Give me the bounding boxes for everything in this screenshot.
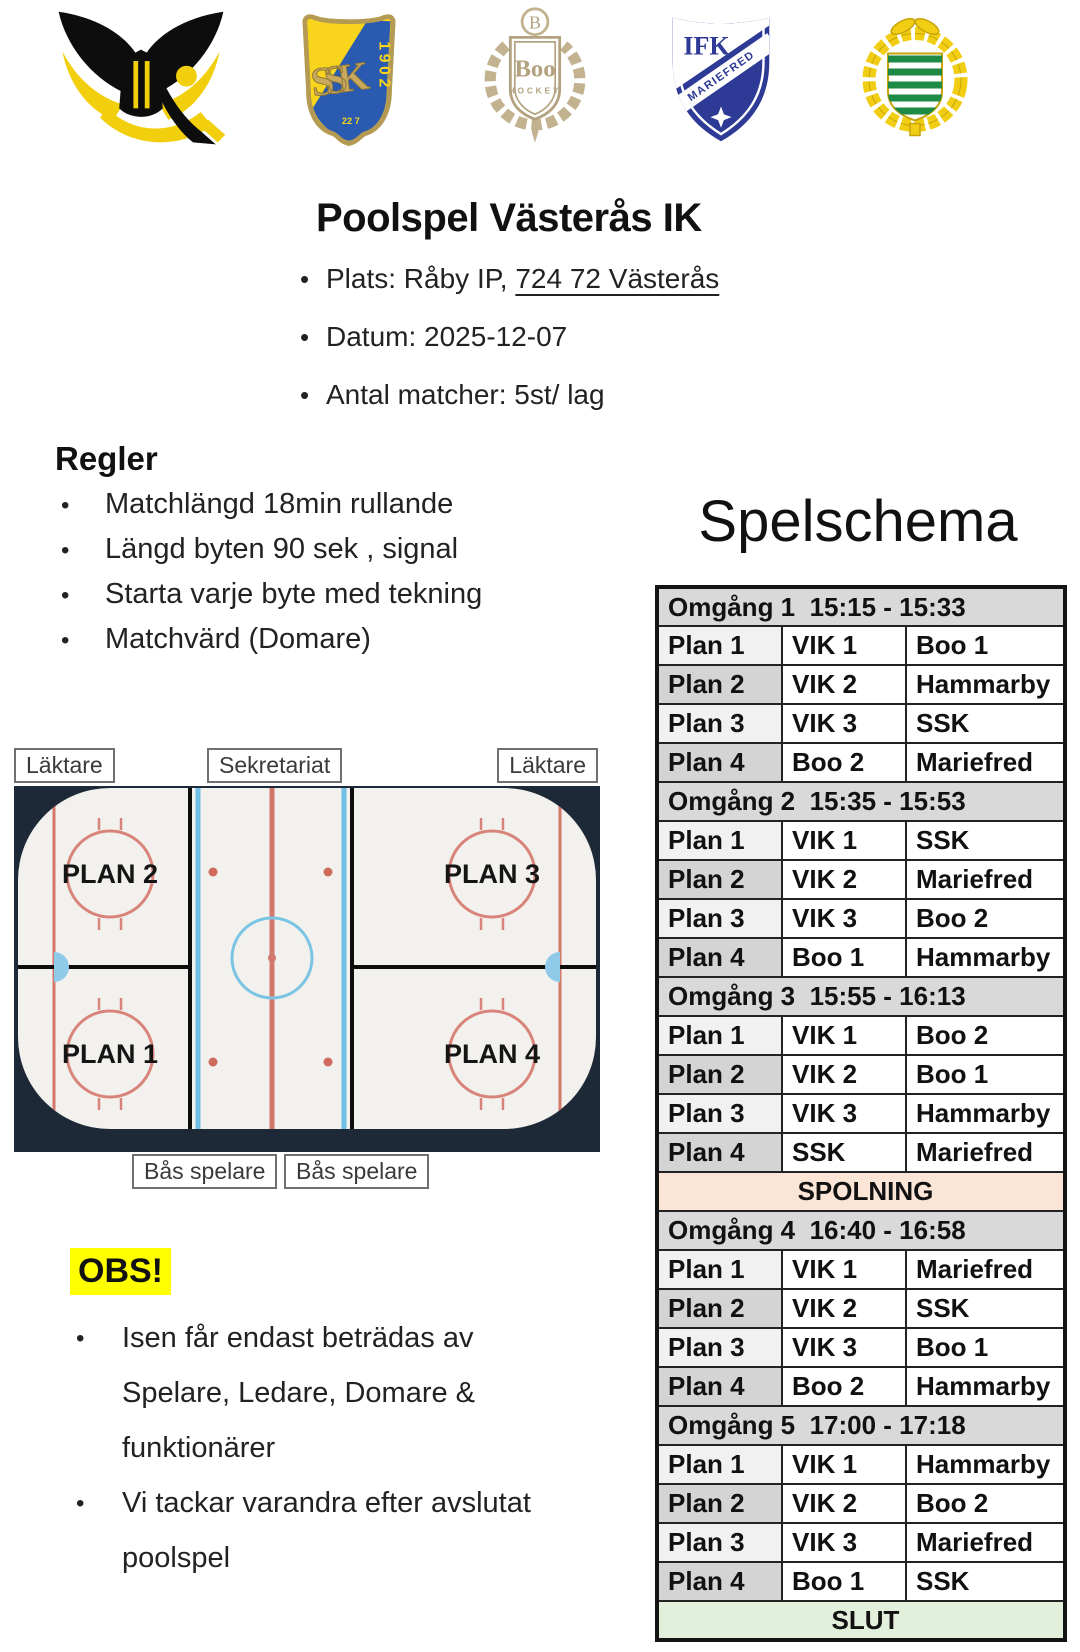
boo-hockey-logo: B Boo HOCKEY: [468, 6, 602, 154]
bullet-dot: •: [55, 627, 105, 655]
away-team-cell: Boo 2: [906, 1484, 1065, 1523]
schedule-match-row: Plan 2VIK 2Boo 2: [657, 1484, 1065, 1523]
schedule-match-row: Plan 4Boo 1SSK: [657, 1562, 1065, 1601]
schedule-banner-row: SPOLNING: [657, 1172, 1065, 1211]
schedule-round-header-row: Omgång 4 16:40 - 16:58: [657, 1211, 1065, 1250]
ifk-logo-art: IFK MARIEFRED: [663, 10, 779, 150]
away-team-cell: Boo 1: [906, 626, 1065, 665]
schedule-round-header-row: Omgång 1 15:15 - 15:33: [657, 587, 1065, 626]
obs-line: poolspel: [122, 1531, 531, 1586]
schedule-match-row: Plan 3VIK 3Mariefred: [657, 1523, 1065, 1562]
plan-cell: Plan 1: [657, 626, 782, 665]
home-team-cell: VIK 3: [782, 899, 906, 938]
obs-line: Spelare, Ledare, Domare &: [122, 1366, 475, 1421]
page-title: Poolspel Västerås IK: [316, 196, 860, 241]
away-team-cell: SSK: [906, 821, 1065, 860]
players-bench-label-2: Bås spelare: [284, 1154, 429, 1189]
home-team-cell: VIK 2: [782, 1055, 906, 1094]
schedule-match-row: Plan 4Boo 2Mariefred: [657, 743, 1065, 782]
home-team-cell: VIK 3: [782, 704, 906, 743]
home-team-cell: VIK 2: [782, 860, 906, 899]
away-team-cell: Hammarby: [906, 665, 1065, 704]
home-team-cell: VIK 2: [782, 1289, 906, 1328]
boo-sub: HOCKEY: [509, 85, 562, 95]
away-team-cell: Hammarby: [906, 1445, 1065, 1484]
home-team-cell: VIK 1: [782, 1445, 906, 1484]
away-team-cell: Hammarby: [906, 1094, 1065, 1133]
spolning-banner-cell: SPOLNING: [657, 1172, 1065, 1211]
plats-text: Plats: Råby IP,: [326, 263, 515, 294]
regler-item: •Matchlängd 18min rullande: [55, 488, 615, 521]
intro-section: Poolspel Västerås IK • Plats: Råby IP, 7…: [300, 196, 860, 437]
schedule-match-row: Plan 1VIK 1Mariefred: [657, 1250, 1065, 1289]
away-team-cell: Boo 1: [906, 1328, 1065, 1367]
vik-logo: [50, 8, 232, 150]
home-team-cell: Boo 2: [782, 743, 906, 782]
boo-name: Boo: [514, 56, 555, 83]
schedule-match-row: Plan 4Boo 1Hammarby: [657, 938, 1065, 977]
plats-address: 724 72 Västerås: [515, 263, 719, 294]
vik-logo-art: [50, 8, 232, 150]
schedule-match-row: Plan 2VIK 2Mariefred: [657, 860, 1065, 899]
home-team-cell: VIK 2: [782, 1484, 906, 1523]
plan-cell: Plan 3: [657, 1094, 782, 1133]
players-bench-label-1: Bås spelare: [132, 1154, 277, 1189]
away-team-cell: Boo 1: [906, 1055, 1065, 1094]
plan-cell: Plan 2: [657, 860, 782, 899]
schedule-match-row: Plan 2VIK 2Hammarby: [657, 665, 1065, 704]
rink-art: PLAN 2 PLAN 3 PLAN 1 PLAN 4: [14, 786, 600, 1152]
round-header-cell: Omgång 1 15:15 - 15:33: [657, 587, 1065, 626]
schedule-match-row: Plan 3VIK 3Hammarby: [657, 1094, 1065, 1133]
regler-section: Regler •Matchlängd 18min rullande •Längd…: [55, 440, 615, 668]
bullet-dot: •: [70, 1311, 122, 1366]
obs-item: • Isen får endast beträdas av Spelare, L…: [70, 1311, 610, 1476]
schedule-table: Omgång 1 15:15 - 15:33Plan 1VIK 1Boo 1Pl…: [655, 585, 1067, 1642]
plan-cell: Plan 2: [657, 1289, 782, 1328]
obs-line: Vi tackar varandra efter avslutat: [122, 1476, 531, 1531]
regler-item: •Längd byten 90 sek , signal: [55, 533, 615, 566]
intro-bullet-plats: • Plats: Råby IP, 724 72 Västerås: [300, 263, 860, 295]
home-team-cell: VIK 3: [782, 1523, 906, 1562]
secretariat-label: Sekretariat: [207, 748, 342, 783]
home-team-cell: VIK 1: [782, 1250, 906, 1289]
rink-diagram: Läktare Sekretariat Läktare: [14, 748, 600, 1192]
round-header-cell: Omgång 4 16:40 - 16:58: [657, 1211, 1065, 1250]
ssk-year: 1902: [375, 41, 392, 90]
away-team-cell: SSK: [906, 704, 1065, 743]
home-team-cell: Boo 2: [782, 1367, 906, 1406]
schedule-table-body: Omgång 1 15:15 - 15:33Plan 1VIK 1Boo 1Pl…: [657, 587, 1065, 1640]
plan-cell: Plan 3: [657, 1523, 782, 1562]
plan-cell: Plan 1: [657, 1445, 782, 1484]
schedule-match-row: Plan 1VIK 1Boo 1: [657, 626, 1065, 665]
stand-label-right: Läktare: [497, 748, 598, 783]
ifk-top-text: IFK: [683, 31, 730, 60]
regler-item: •Matchvärd (Domare): [55, 623, 615, 656]
home-team-cell: VIK 1: [782, 1016, 906, 1055]
plan-cell: Plan 4: [657, 1133, 782, 1172]
plan-cell: Plan 1: [657, 821, 782, 860]
plan-cell: Plan 1: [657, 1016, 782, 1055]
obs-line: Isen får endast beträdas av: [122, 1311, 475, 1366]
home-team-cell: VIK 1: [782, 821, 906, 860]
ssk-logo-art: SSK 1902 22 7: [293, 12, 405, 150]
schedule-match-row: Plan 1VIK 1SSK: [657, 821, 1065, 860]
schedule-round-header-row: Omgång 2 15:35 - 15:53: [657, 782, 1065, 821]
bullet-dot: •: [300, 380, 326, 411]
bullet-dot: •: [55, 492, 105, 520]
home-team-cell: SSK: [782, 1133, 906, 1172]
spelschema-title: Spelschema: [653, 488, 1063, 555]
plan-cell: Plan 4: [657, 1562, 782, 1601]
away-team-cell: Boo 2: [906, 1016, 1065, 1055]
bullet-dot: •: [300, 264, 326, 295]
regler-item-text: Matchvärd (Domare): [105, 623, 371, 656]
home-team-cell: VIK 1: [782, 626, 906, 665]
away-team-cell: SSK: [906, 1562, 1065, 1601]
obs-line: funktionärer: [122, 1421, 475, 1476]
datum-text: Datum: 2025-12-07: [326, 321, 567, 353]
away-team-cell: Hammarby: [906, 938, 1065, 977]
intro-bullet-antal: • Antal matcher: 5st/ lag: [300, 379, 860, 411]
plan-2-label: PLAN 2: [62, 859, 158, 889]
plan-cell: Plan 2: [657, 665, 782, 704]
ifk-mariefred-logo: IFK MARIEFRED: [663, 10, 779, 150]
plan-cell: Plan 2: [657, 1055, 782, 1094]
intro-bullets: • Plats: Råby IP, 724 72 Västerås • Datu…: [300, 263, 860, 411]
plan-cell: Plan 2: [657, 1484, 782, 1523]
slut-banner-cell: SLUT: [657, 1601, 1065, 1640]
poolspel-poster: SSK 1902 22 7 B Boo HOCKEY: [0, 0, 1080, 1652]
ssk-logo: SSK 1902 22 7: [293, 12, 405, 150]
schedule-round-header-row: Omgång 3 15:55 - 16:13: [657, 977, 1065, 1016]
boo-initial: B: [529, 12, 541, 32]
away-team-cell: Mariefred: [906, 1250, 1065, 1289]
schedule-match-row: Plan 3VIK 3Boo 1: [657, 1328, 1065, 1367]
away-team-cell: Mariefred: [906, 1523, 1065, 1562]
stand-label-left: Läktare: [14, 748, 115, 783]
schedule-round-header-row: Omgång 5 17:00 - 17:18: [657, 1406, 1065, 1445]
home-team-cell: Boo 1: [782, 938, 906, 977]
schedule-match-row: Plan 2VIK 2SSK: [657, 1289, 1065, 1328]
plan-cell: Plan 4: [657, 743, 782, 782]
regler-item-text: Matchlängd 18min rullande: [105, 488, 453, 521]
regler-list: •Matchlängd 18min rullande •Längd byten …: [55, 488, 615, 656]
regler-heading: Regler: [55, 440, 615, 478]
obs-section: OBS! • Isen får endast beträdas av Spela…: [70, 1248, 610, 1586]
regler-item-text: Längd byten 90 sek , signal: [105, 533, 458, 566]
round-header-cell: Omgång 2 15:35 - 15:53: [657, 782, 1065, 821]
plan-cell: Plan 4: [657, 1367, 782, 1406]
home-team-cell: VIK 3: [782, 1328, 906, 1367]
hammarby-logo: [850, 6, 980, 152]
round-header-cell: Omgång 5 17:00 - 17:18: [657, 1406, 1065, 1445]
obs-item: • Vi tackar varandra efter avslutat pool…: [70, 1476, 610, 1586]
obs-heading: OBS!: [70, 1248, 171, 1295]
plan-cell: Plan 1: [657, 1250, 782, 1289]
schedule-match-row: Plan 1VIK 1Boo 2: [657, 1016, 1065, 1055]
away-team-cell: Mariefred: [906, 860, 1065, 899]
bullet-dot: •: [300, 322, 326, 353]
hammarby-logo-art: [850, 6, 980, 152]
plan-1-label: PLAN 1: [62, 1039, 158, 1069]
schedule-match-row: Plan 1VIK 1Hammarby: [657, 1445, 1065, 1484]
schedule-match-row: Plan 4SSKMariefred: [657, 1133, 1065, 1172]
away-team-cell: Boo 2: [906, 899, 1065, 938]
away-team-cell: Mariefred: [906, 743, 1065, 782]
away-team-cell: Mariefred: [906, 1133, 1065, 1172]
obs-list: • Isen får endast beträdas av Spelare, L…: [70, 1311, 610, 1586]
boo-logo-art: B Boo HOCKEY: [468, 6, 602, 154]
antal-text: Antal matcher: 5st/ lag: [326, 379, 605, 411]
intro-bullet-datum: • Datum: 2025-12-07: [300, 321, 860, 353]
bullet-dot: •: [70, 1476, 122, 1531]
schedule-match-row: Plan 4Boo 2Hammarby: [657, 1367, 1065, 1406]
plan-3-label: PLAN 3: [444, 859, 540, 889]
plan-cell: Plan 3: [657, 704, 782, 743]
schedule-banner-row: SLUT: [657, 1601, 1065, 1640]
home-team-cell: Boo 1: [782, 1562, 906, 1601]
plan-4-label: PLAN 4: [444, 1039, 540, 1069]
round-header-cell: Omgång 3 15:55 - 16:13: [657, 977, 1065, 1016]
home-team-cell: VIK 2: [782, 665, 906, 704]
regler-item-text: Starta varje byte med tekning: [105, 578, 482, 611]
plan-cell: Plan 3: [657, 1328, 782, 1367]
away-team-cell: SSK: [906, 1289, 1065, 1328]
schedule-match-row: Plan 2VIK 2Boo 1: [657, 1055, 1065, 1094]
away-team-cell: Hammarby: [906, 1367, 1065, 1406]
plan-cell: Plan 3: [657, 899, 782, 938]
schedule-match-row: Plan 3VIK 3SSK: [657, 704, 1065, 743]
home-team-cell: VIK 3: [782, 1094, 906, 1133]
bullet-dot: •: [55, 537, 105, 565]
bullet-dot: •: [55, 582, 105, 610]
schedule-match-row: Plan 3VIK 3Boo 2: [657, 899, 1065, 938]
ssk-small-text: 22 7: [342, 116, 360, 126]
plan-cell: Plan 4: [657, 938, 782, 977]
regler-item: •Starta varje byte med tekning: [55, 578, 615, 611]
